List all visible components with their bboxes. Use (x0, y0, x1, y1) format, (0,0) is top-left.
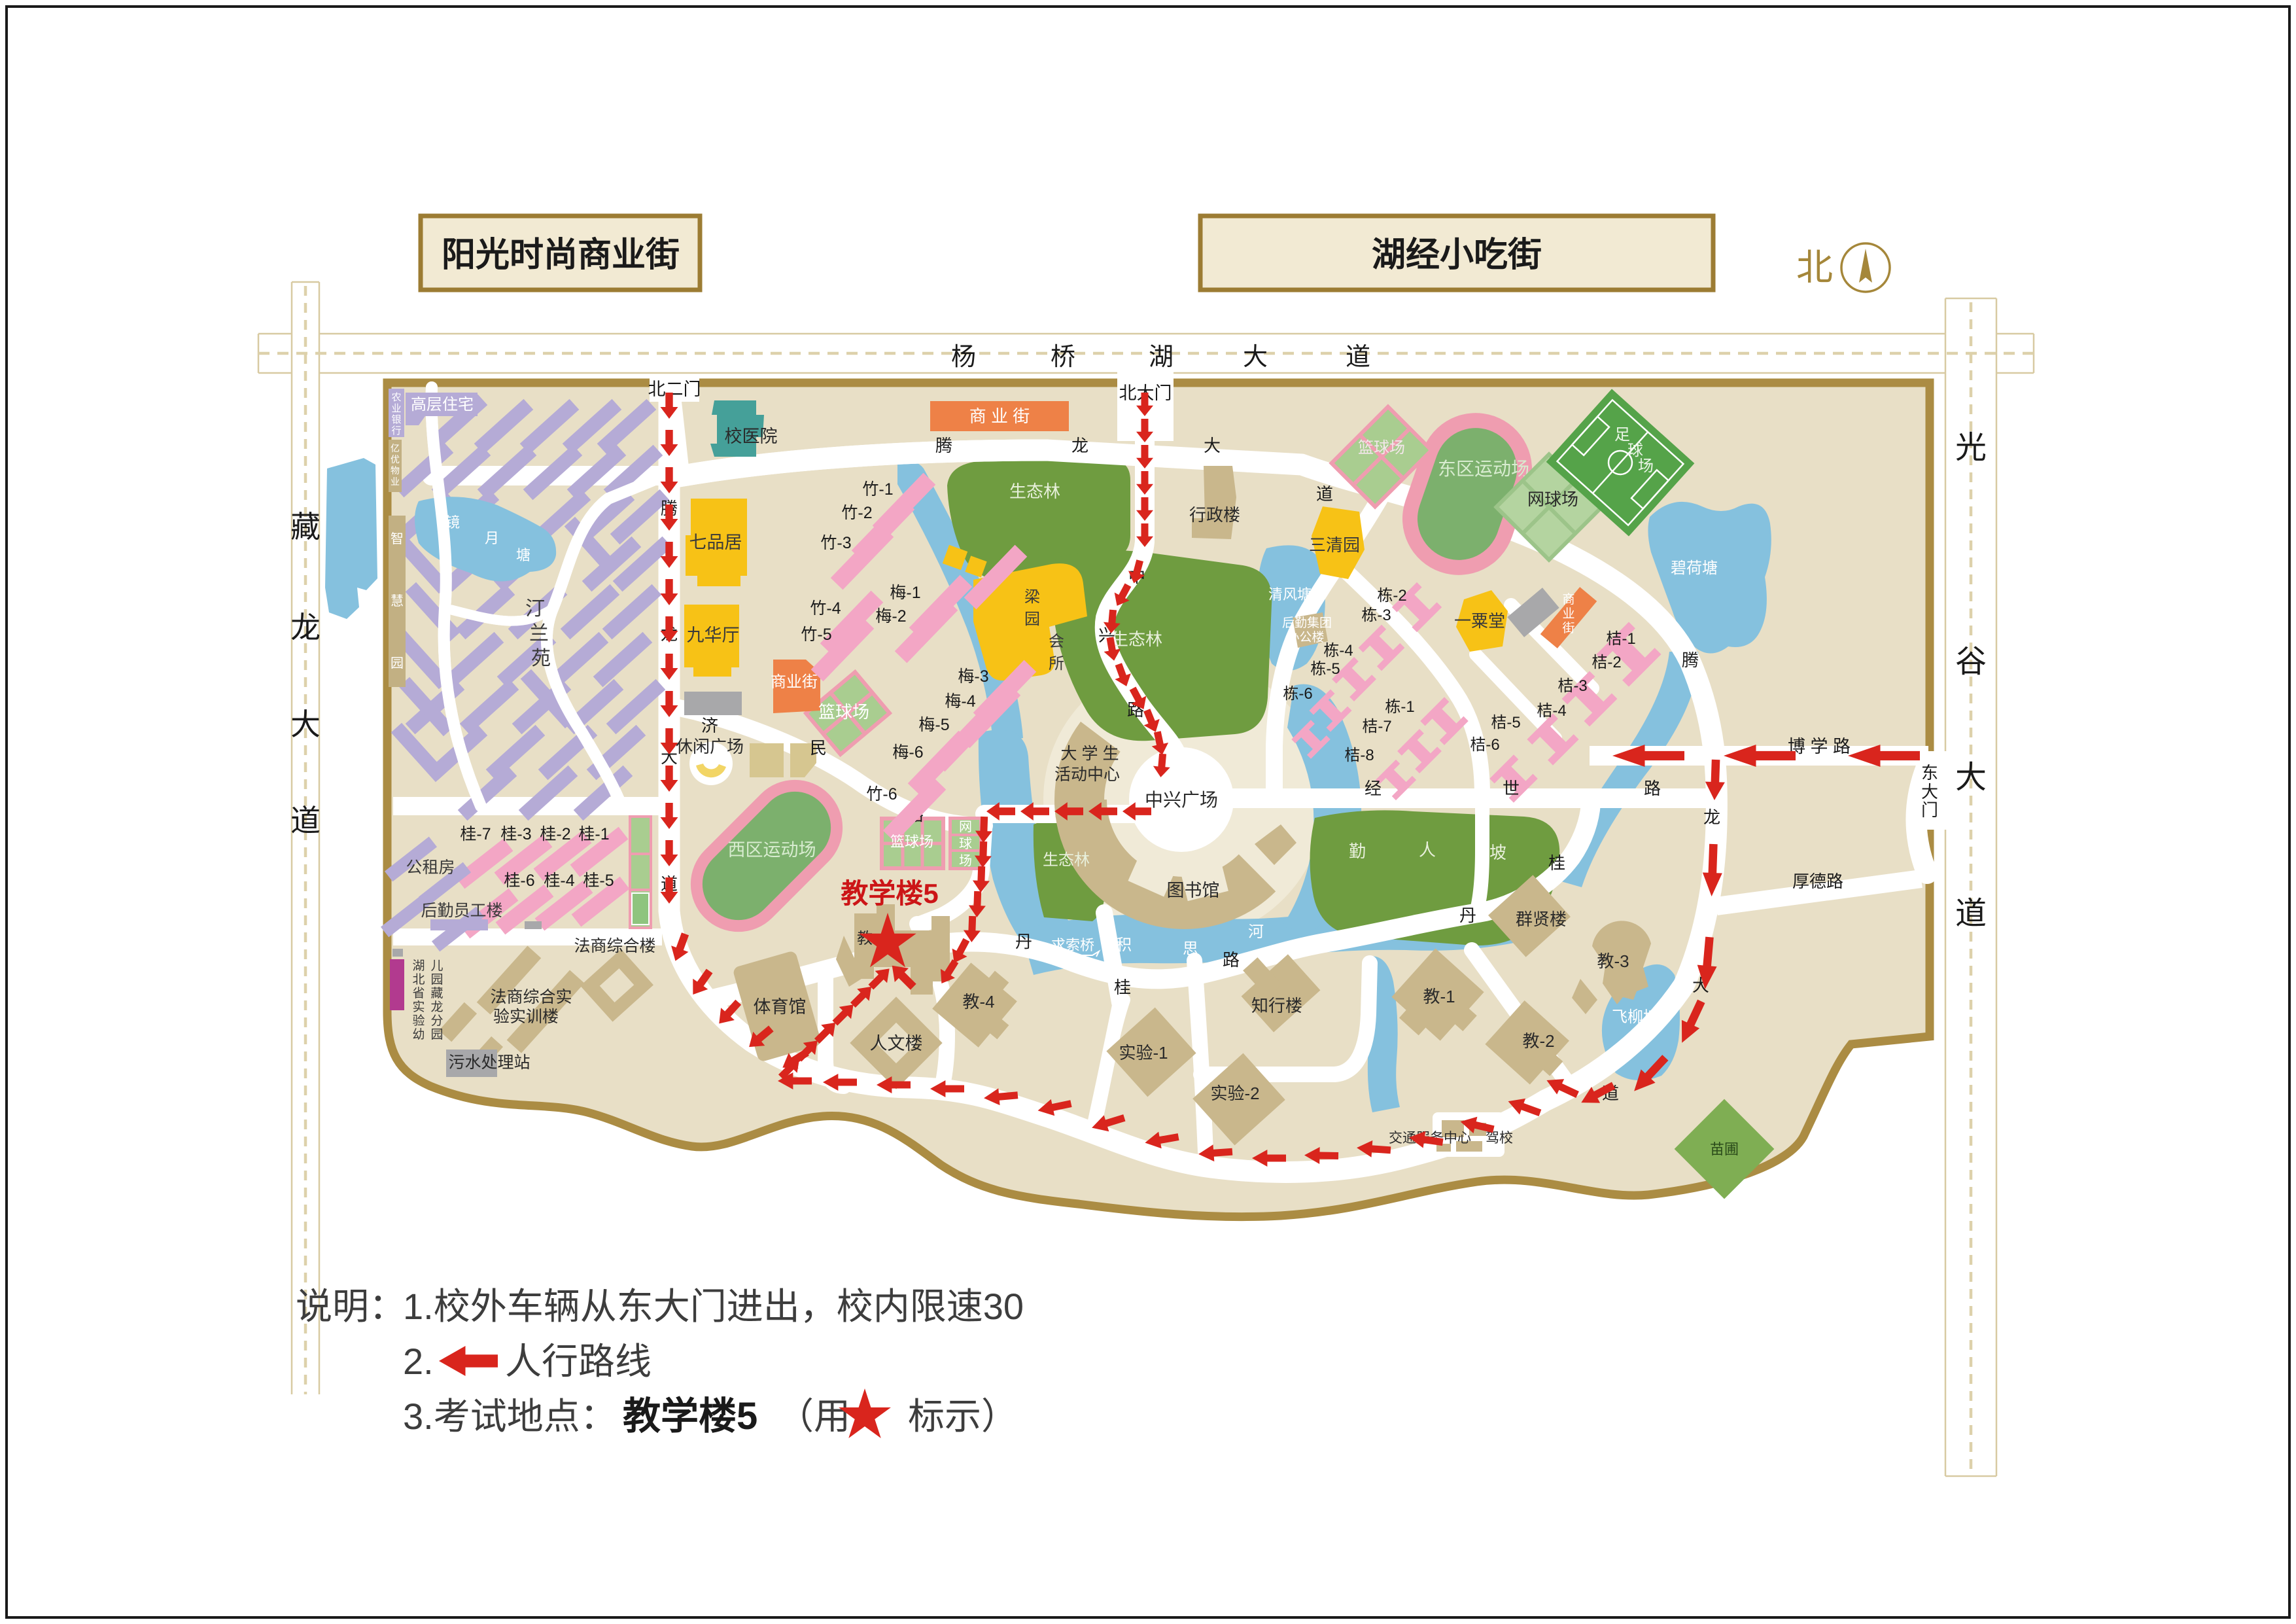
svg-text:湖经小吃街: 湖经小吃街 (1372, 236, 1542, 274)
svg-text:丹: 丹 (1015, 932, 1032, 951)
svg-text:场: 场 (959, 853, 972, 868)
svg-text:驾校: 驾校 (1486, 1131, 1513, 1146)
svg-text:门: 门 (1921, 800, 1938, 820)
svg-text:梅-4: 梅-4 (945, 692, 975, 711)
svg-text:桂-7: 桂-7 (460, 825, 491, 843)
svg-text:竹-5: 竹-5 (801, 626, 831, 644)
svg-text:桂-1: 桂-1 (578, 825, 609, 843)
svg-text:网: 网 (959, 820, 972, 834)
svg-text:大: 大 (1921, 782, 1938, 802)
svg-text:积: 积 (1116, 936, 1132, 954)
svg-text:中兴广场: 中兴广场 (1145, 790, 1218, 810)
svg-text:桔-8: 桔-8 (1344, 747, 1374, 764)
svg-text:梅-1: 梅-1 (890, 584, 920, 602)
svg-text:教-2: 教-2 (1522, 1031, 1554, 1051)
svg-text:梅-2: 梅-2 (875, 607, 906, 626)
svg-text:大: 大 (1955, 760, 1987, 795)
svg-text:桔-4: 桔-4 (1537, 702, 1566, 720)
svg-text:道: 道 (1316, 484, 1333, 504)
svg-text:实验-2: 实验-2 (1210, 1084, 1259, 1103)
svg-text:办公楼: 办公楼 (1287, 630, 1324, 644)
svg-text:栋-3: 栋-3 (1361, 607, 1391, 624)
svg-text:栋-4: 栋-4 (1323, 642, 1353, 660)
svg-text:体育馆: 体育馆 (754, 997, 807, 1017)
svg-text:图书馆: 图书馆 (1167, 881, 1220, 900)
svg-text:月: 月 (485, 530, 499, 546)
svg-text:梅-5: 梅-5 (918, 716, 949, 734)
svg-text:栋-1: 栋-1 (1385, 698, 1414, 716)
svg-text:园: 园 (430, 973, 443, 987)
svg-text:桔-6: 桔-6 (1470, 736, 1499, 754)
svg-text:商 业 街: 商 业 街 (969, 406, 1030, 426)
svg-text:慧: 慧 (391, 593, 404, 609)
svg-text:梅-3: 梅-3 (958, 667, 988, 686)
svg-text:杨: 杨 (951, 344, 976, 371)
svg-text:标示）: 标示） (908, 1396, 1018, 1437)
svg-text:湖: 湖 (412, 959, 425, 973)
svg-text:丹: 丹 (1459, 906, 1476, 925)
svg-text:清风塘: 清风塘 (1268, 586, 1312, 603)
svg-text:群贤楼: 群贤楼 (1516, 909, 1567, 929)
svg-text:竹-3: 竹-3 (820, 534, 851, 552)
svg-text:篮球场: 篮球场 (1358, 439, 1405, 457)
svg-text:桔-1: 桔-1 (1606, 630, 1635, 648)
svg-text:大: 大 (290, 707, 321, 741)
svg-text:汀: 汀 (525, 598, 545, 620)
svg-text:行政楼: 行政楼 (1189, 505, 1240, 525)
svg-text:业: 业 (1562, 607, 1574, 621)
svg-text:一粟堂: 一粟堂 (1454, 611, 1505, 631)
svg-text:竹-2: 竹-2 (841, 504, 872, 522)
svg-text:人: 人 (1419, 840, 1436, 860)
svg-text:梁: 梁 (1024, 588, 1040, 606)
svg-text:济: 济 (701, 716, 718, 735)
svg-text:桂-4: 桂-4 (544, 872, 574, 890)
svg-text:会: 会 (1049, 633, 1064, 650)
svg-text:腾: 腾 (1682, 650, 1699, 670)
svg-text:碧荷塘: 碧荷塘 (1671, 559, 1718, 577)
svg-text:龙: 龙 (1071, 436, 1088, 455)
svg-text:桂: 桂 (1114, 978, 1131, 997)
svg-text:农: 农 (391, 392, 401, 403)
svg-text:智: 智 (391, 531, 404, 546)
svg-text:厚德路: 厚德路 (1792, 872, 1843, 891)
svg-text:道: 道 (1955, 896, 1987, 931)
svg-text:人行路线: 人行路线 (505, 1341, 652, 1382)
svg-text:腾: 腾 (935, 436, 952, 455)
svg-text:东: 东 (1921, 763, 1938, 783)
svg-text:坡: 坡 (1489, 843, 1506, 862)
svg-text:园: 园 (391, 656, 404, 671)
svg-text:北: 北 (1796, 247, 1833, 288)
svg-text:教-3: 教-3 (1597, 951, 1629, 971)
svg-text:勤: 勤 (1349, 841, 1366, 861)
svg-text:栋-5: 栋-5 (1310, 660, 1340, 678)
svg-text:园: 园 (430, 1028, 443, 1042)
svg-text:阳光时尚商业街: 阳光时尚商业街 (442, 236, 680, 274)
svg-text:博 学 路: 博 学 路 (1788, 737, 1851, 756)
svg-text:球: 球 (959, 836, 972, 851)
svg-text:（用: （用 (777, 1396, 850, 1437)
svg-text:网球场: 网球场 (1527, 489, 1578, 509)
svg-text:道: 道 (1346, 344, 1370, 371)
svg-text:桂-5: 桂-5 (583, 872, 614, 890)
svg-text:飞柳塘: 飞柳塘 (1612, 1008, 1659, 1026)
svg-text:后勤员工楼: 后勤员工楼 (421, 902, 502, 920)
svg-text:业: 业 (391, 476, 400, 487)
svg-text:生态林: 生态林 (1111, 629, 1162, 649)
svg-text:大 学 生: 大 学 生 (1061, 745, 1119, 763)
svg-text:亿: 亿 (391, 443, 400, 453)
svg-text:所: 所 (1049, 655, 1064, 673)
svg-text:商: 商 (1562, 592, 1574, 607)
svg-text:河: 河 (1248, 923, 1264, 941)
svg-text:说明：: 说明： (296, 1286, 406, 1327)
svg-text:西区运动场: 西区运动场 (728, 840, 816, 860)
svg-text:竹-6: 竹-6 (866, 785, 897, 803)
svg-text:民: 民 (810, 738, 827, 758)
svg-text:街: 街 (1562, 621, 1574, 635)
svg-text:桂-3: 桂-3 (500, 825, 531, 843)
svg-text:谷: 谷 (1955, 644, 1987, 679)
svg-text:验实训楼: 验实训楼 (493, 1008, 559, 1026)
svg-text:大: 大 (1204, 436, 1221, 455)
svg-text:污水处理站: 污水处理站 (448, 1053, 530, 1072)
svg-text:桂-2: 桂-2 (540, 825, 570, 843)
svg-text:竹-1: 竹-1 (862, 480, 893, 499)
svg-text:教学楼5: 教学楼5 (623, 1395, 757, 1438)
svg-text:篮球场: 篮球场 (818, 702, 869, 722)
svg-text:实验-1: 实验-1 (1119, 1043, 1168, 1063)
svg-text:路: 路 (1223, 950, 1240, 970)
svg-text:实: 实 (412, 1000, 425, 1014)
svg-text:1.校外车辆从东大门进出，校内限速30: 1.校外车辆从东大门进出，校内限速30 (403, 1286, 1024, 1327)
svg-text:经: 经 (1365, 779, 1382, 798)
svg-text:校医院: 校医院 (725, 427, 778, 446)
svg-text:桂: 桂 (1548, 853, 1565, 873)
svg-text:知行楼: 知行楼 (1251, 996, 1302, 1015)
svg-text:塘: 塘 (516, 547, 531, 563)
svg-text:北二门: 北二门 (648, 380, 701, 399)
svg-text:龙: 龙 (290, 610, 321, 644)
svg-text:休闲广场: 休闲广场 (676, 737, 744, 756)
svg-text:验: 验 (412, 1014, 425, 1028)
svg-text:园: 园 (1024, 610, 1040, 628)
svg-text:镜: 镜 (445, 514, 460, 531)
svg-text:思: 思 (1183, 940, 1198, 958)
svg-text:2.: 2. (403, 1341, 434, 1382)
svg-text:分: 分 (430, 1014, 443, 1028)
svg-text:教学楼5: 教学楼5 (841, 878, 938, 909)
svg-text:桔-7: 桔-7 (1362, 718, 1391, 735)
svg-text:藏: 藏 (290, 510, 321, 544)
svg-text:龙: 龙 (430, 1000, 443, 1014)
svg-text:七品居: 七品居 (689, 533, 742, 552)
svg-text:银: 银 (391, 414, 401, 425)
svg-text:篮球场: 篮球场 (890, 834, 933, 850)
svg-text:桔-2: 桔-2 (1592, 654, 1621, 671)
svg-text:公租房: 公租房 (406, 858, 455, 877)
svg-text:行: 行 (391, 425, 401, 436)
svg-text:九华厅: 九华厅 (687, 626, 740, 645)
svg-text:法商综合实: 法商综合实 (490, 988, 572, 1006)
svg-text:高层住宅: 高层住宅 (411, 396, 474, 414)
svg-text:生态林: 生态林 (1009, 482, 1060, 501)
svg-text:桔-5: 桔-5 (1491, 714, 1520, 732)
svg-text:东区运动场: 东区运动场 (1438, 459, 1529, 479)
svg-text:光: 光 (1955, 431, 1987, 465)
svg-text:法商综合楼: 法商综合楼 (574, 937, 655, 955)
svg-text:桂-6: 桂-6 (504, 872, 534, 890)
svg-text:梅-6: 梅-6 (892, 743, 923, 762)
svg-text:活动中心: 活动中心 (1054, 766, 1120, 784)
svg-text:幼: 幼 (412, 1027, 425, 1042)
svg-text:大: 大 (1243, 344, 1268, 371)
svg-text:后勤集团: 后勤集团 (1282, 616, 1332, 630)
svg-text:商业街: 商业街 (771, 673, 818, 691)
svg-text:3.考试地点：: 3.考试地点： (403, 1396, 617, 1437)
svg-text:足: 足 (1614, 426, 1630, 444)
svg-text:生态林: 生态林 (1043, 851, 1090, 869)
svg-text:藏: 藏 (430, 986, 443, 1000)
svg-text:湖: 湖 (1149, 344, 1174, 371)
svg-text:栋-6: 栋-6 (1283, 685, 1312, 703)
svg-text:物: 物 (391, 465, 400, 476)
svg-text:道: 道 (290, 803, 321, 838)
svg-text:龙: 龙 (1703, 807, 1720, 827)
svg-text:业: 业 (391, 403, 401, 414)
svg-text:教-4: 教-4 (962, 992, 994, 1012)
svg-text:场: 场 (1638, 457, 1654, 475)
svg-text:人文楼: 人文楼 (870, 1034, 923, 1053)
svg-text:优: 优 (391, 454, 400, 465)
svg-text:球: 球 (1627, 442, 1643, 459)
svg-text:教-1: 教-1 (1423, 987, 1455, 1006)
svg-text:兰: 兰 (529, 623, 549, 644)
svg-text:桥: 桥 (1051, 344, 1075, 371)
svg-text:苑: 苑 (531, 648, 551, 669)
svg-text:北: 北 (412, 972, 425, 987)
svg-text:三清园: 三清园 (1309, 535, 1360, 555)
svg-text:路: 路 (1644, 779, 1661, 798)
svg-text:竹-4: 竹-4 (810, 599, 841, 618)
svg-text:世: 世 (1503, 779, 1520, 798)
svg-text:栋-2: 栋-2 (1377, 587, 1406, 605)
svg-text:桔-3: 桔-3 (1557, 677, 1587, 695)
svg-text:儿: 儿 (430, 959, 443, 973)
svg-text:求索桥: 求索桥 (1051, 937, 1094, 953)
svg-text:苗圃: 苗圃 (1710, 1141, 1739, 1157)
svg-text:省: 省 (412, 986, 425, 1000)
